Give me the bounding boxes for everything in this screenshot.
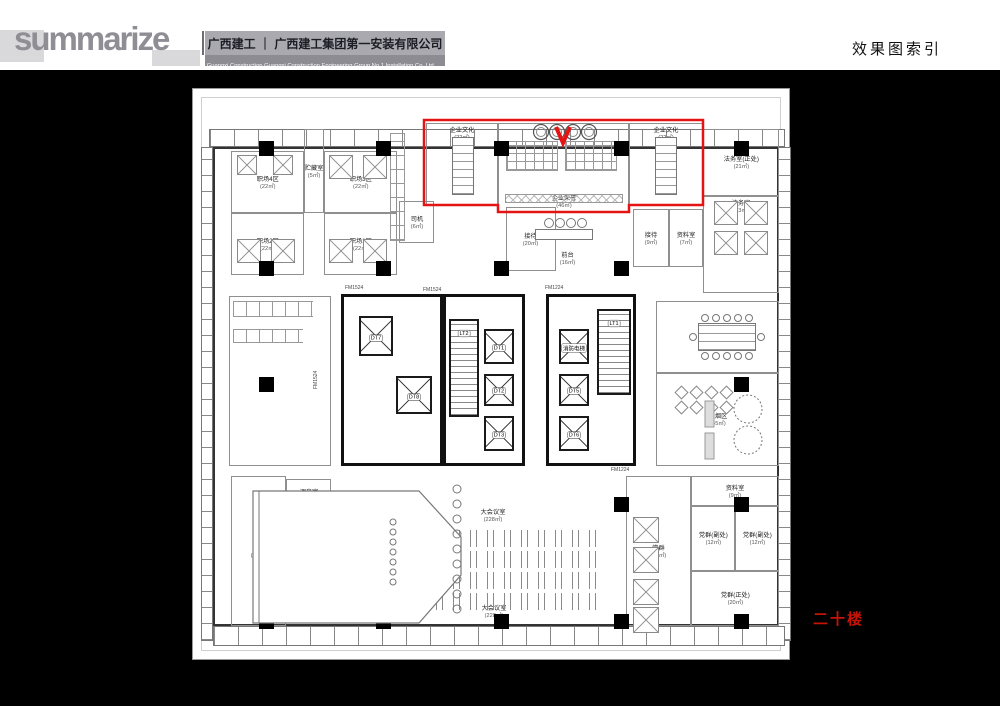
desk-cluster [744, 201, 768, 225]
desk-cluster [633, 547, 659, 573]
furniture [398, 514, 420, 596]
furniture [233, 301, 313, 317]
room-label: 资料室(7㎡) [677, 231, 696, 244]
elevator-DT7: DT7 [359, 316, 393, 356]
room-label: 资料室(9㎡) [726, 484, 745, 497]
stair-label: LT1 [608, 320, 620, 327]
room-label: 职场4区(22㎡) [256, 175, 278, 188]
room-大会议室: 大会议室(228㎡) [448, 507, 538, 523]
room-label: 党群(正处)(20㎡) [721, 592, 750, 605]
elevator-label: DT5 [567, 388, 581, 395]
door-tag: FM1524 [345, 285, 363, 291]
stair-label: LT2 [458, 330, 470, 337]
structural-column [494, 614, 509, 629]
elevator-label: DT6 [567, 431, 581, 438]
room-资料室: 资料室(7㎡) [669, 209, 703, 267]
furniture [233, 329, 303, 343]
structural-column [376, 261, 391, 276]
structural-column [494, 141, 509, 156]
room-舞台: 舞台(58㎡) [289, 529, 349, 599]
desk-cluster [273, 155, 293, 175]
elevator-DT2: DT2 [484, 374, 514, 406]
room-前台: 前台(16㎡) [533, 241, 603, 275]
structural-column [259, 377, 274, 392]
furniture [565, 141, 617, 171]
structural-column [376, 141, 391, 156]
room-label: 司机(6㎡) [410, 215, 422, 228]
room-label: 前台(16㎡) [560, 251, 576, 264]
elevator-DT1: DT1 [484, 329, 514, 364]
elevator-消防电梯: 消防电梯 [559, 329, 589, 364]
elevator-label: DT2 [492, 388, 506, 395]
elevator-DT8: DT8 [396, 376, 432, 414]
room-label: 大会议室(228㎡) [481, 508, 506, 521]
room-label: 接待(9㎡) [645, 231, 657, 244]
elevator-DT6: DT6 [559, 416, 589, 451]
floor-label: 二十楼 [813, 608, 864, 629]
room-label: 吸烟区(45㎡) [708, 413, 727, 426]
desk-cluster [363, 155, 387, 179]
logo-text: summarize [14, 22, 168, 56]
desk-cluster [633, 517, 659, 543]
structural-column [734, 141, 749, 156]
desk-cluster [329, 239, 353, 263]
page-title: 效果图索引 [852, 38, 942, 59]
elevator-label: DT8 [407, 393, 421, 400]
desk-cluster [714, 201, 738, 225]
facade-band-right [777, 147, 791, 641]
structural-column [614, 497, 629, 512]
elevator-label: DT3 [492, 431, 506, 438]
company-name-en: Guangxi Construction Guangxi Constructio… [205, 55, 445, 66]
furniture [535, 229, 593, 240]
structural-column [734, 497, 749, 512]
furniture [506, 141, 558, 171]
room-label: 贮藏室(5㎡) [305, 164, 324, 177]
structural-column [614, 141, 629, 156]
slide-header: summarize 广西建工 ｜ 广西建工集团第一安装有限公司 Guangxi … [0, 0, 1000, 70]
room-吸烟区: 吸烟区(45㎡) [656, 373, 779, 466]
stair-LT1: LT1 [597, 309, 631, 395]
room-党群(副处): 党群(副处)(12㎡) [691, 506, 735, 571]
room-法务室(正处): 法务室(正处)(21㎡) [703, 129, 779, 196]
stair-LT2: LT2 [449, 319, 479, 417]
header-divider [202, 31, 204, 55]
structural-column [259, 497, 274, 512]
elevator-label: DT7 [369, 334, 383, 341]
desk-cluster [714, 231, 738, 255]
room-调音室: 调音室(7㎡) [286, 479, 331, 511]
furniture [505, 194, 623, 203]
room-label: 法务室(正处)(21㎡) [723, 156, 758, 169]
desk-cluster [237, 155, 257, 175]
door-tag: FM1224 [611, 467, 629, 473]
structural-column [614, 261, 629, 276]
furniture [655, 137, 677, 195]
desk-cluster [744, 231, 768, 255]
furniture [698, 323, 756, 351]
elevator-DT3: DT3 [484, 416, 514, 451]
facade-band-bottom [213, 626, 785, 646]
structural-column [494, 261, 509, 276]
structural-column [614, 614, 629, 629]
desk-cluster [633, 607, 659, 633]
door-tag: FM1524 [313, 371, 319, 389]
structural-column [259, 614, 274, 629]
desk-cluster [271, 239, 295, 263]
structural-column [259, 141, 274, 156]
elevator-DT5: DT5 [559, 374, 589, 406]
door-tag: FM1224 [545, 285, 563, 291]
desk-cluster [237, 239, 261, 263]
desk-cluster [329, 155, 353, 179]
elevator-label: 消防电梯 [561, 343, 586, 352]
room-接待: 接待(9㎡) [633, 209, 669, 267]
room-党群(副处): 党群(副处)(12㎡) [735, 506, 779, 571]
room-label: 党群(副处)(12㎡) [699, 532, 728, 545]
room-label: 后台(45㎡) [251, 544, 267, 557]
floorplan-panel: 职场4区(22㎡)贮藏室(5㎡)职场3区(22㎡)职场2区(22㎡)职场1区(2… [192, 88, 790, 660]
structural-column [734, 377, 749, 392]
furniture [390, 133, 405, 241]
facade-band-left [201, 147, 213, 641]
company-name-cn: 广西建工 ｜ 广西建工集团第一安装有限公司 [205, 31, 445, 55]
desk-cluster [633, 579, 659, 605]
room-label: 舞台(58㎡) [311, 557, 327, 570]
structural-column [259, 261, 274, 276]
structural-column [734, 614, 749, 629]
room-label: 党群(副处)(12㎡) [743, 532, 772, 545]
structural-column [376, 614, 391, 629]
elevator-label: DT1 [492, 344, 506, 351]
furniture [452, 137, 474, 195]
room-label: 调音室(7㎡) [299, 488, 318, 501]
room-贮藏室: 贮藏室(5㎡) [304, 129, 324, 213]
door-tag: FM1524 [423, 287, 441, 293]
desk-cluster [363, 239, 387, 263]
